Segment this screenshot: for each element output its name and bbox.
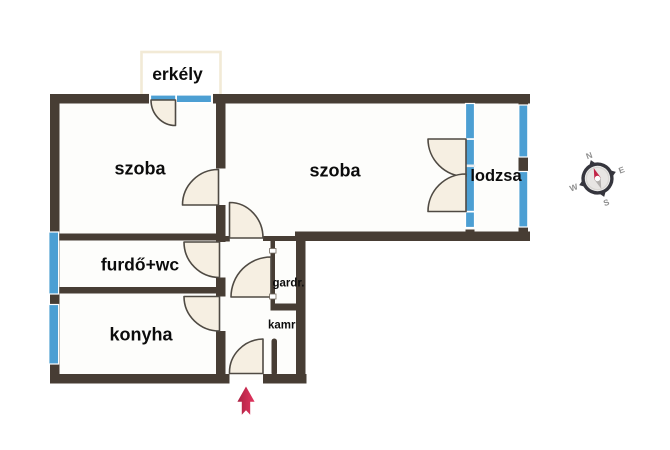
svg-text:erkély: erkély (152, 64, 203, 84)
svg-text:gardr.: gardr. (273, 278, 305, 290)
svg-text:konyha: konyha (109, 325, 173, 345)
svg-text:W: W (568, 181, 580, 193)
svg-text:E: E (617, 164, 626, 175)
svg-text:kamr: kamr (268, 320, 296, 332)
svg-text:furdő+wc: furdő+wc (101, 255, 180, 275)
svg-text:szoba: szoba (309, 161, 361, 181)
svg-text:S: S (602, 197, 611, 208)
svg-text:lodzsa: lodzsa (470, 167, 522, 185)
svg-text:szoba: szoba (114, 159, 166, 179)
svg-text:N: N (585, 150, 594, 161)
